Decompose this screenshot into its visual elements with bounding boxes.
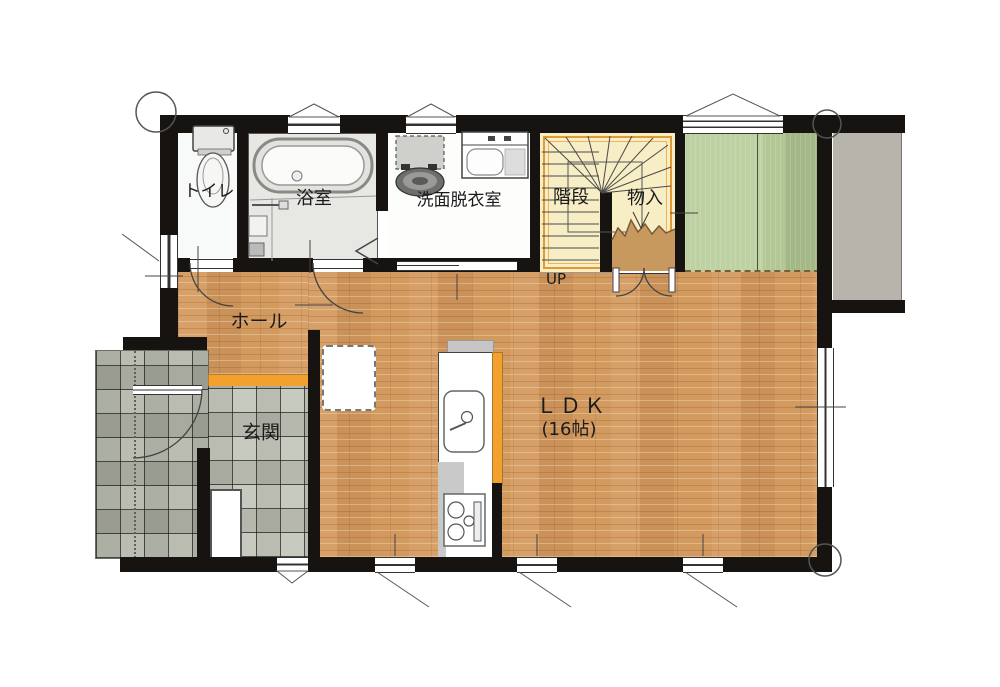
casement-window-line — [519, 572, 571, 607]
wall-bottom-c — [557, 557, 683, 572]
toilet-door-opening — [190, 259, 233, 269]
casement-window-line — [377, 572, 429, 607]
bottom-window-3 — [683, 557, 723, 573]
closet-door-opening — [614, 264, 674, 274]
wall-top-d — [782, 115, 905, 133]
casement-window-line — [685, 572, 737, 607]
entrance-label: 玄関 — [242, 418, 280, 445]
washroom-window — [406, 116, 456, 134]
toilet-label: トイレ — [184, 177, 235, 202]
wall-bottom-a1 — [120, 557, 277, 572]
bottom-window-2 — [517, 557, 557, 573]
wall-bottom-a2 — [308, 557, 375, 572]
wall-entrance-left — [197, 448, 210, 557]
kitchen-counter-edge-orange — [492, 352, 503, 485]
wall-bottom-d — [723, 557, 832, 572]
wall-stairs-right — [675, 133, 685, 272]
stairs-up-label: UP — [546, 270, 566, 288]
shoe-cabinet-icon — [210, 489, 242, 561]
wall-mid-b — [233, 258, 313, 272]
stairs-label: 階段 — [553, 183, 589, 209]
closet-label: 物入 — [627, 184, 663, 210]
wall-bottom-b — [415, 557, 517, 572]
tatami-area — [685, 133, 820, 272]
porch-drain-dotted-line — [134, 351, 136, 558]
terrace — [833, 133, 902, 301]
washroom-door-opening — [313, 259, 363, 269]
bay-window-triangle — [277, 571, 308, 583]
wall-top-a — [160, 115, 290, 133]
wall-right-bottom — [817, 487, 832, 557]
entrance-porch-tiles — [95, 350, 209, 559]
wall-stairs-center — [600, 192, 612, 272]
bottom-window-1 — [375, 557, 415, 573]
wall-entrance-right — [308, 330, 320, 557]
toilet-window — [160, 235, 178, 288]
wall-toilet-right — [237, 133, 248, 258]
front-door-line — [133, 385, 202, 395]
wall-top-b — [340, 115, 408, 133]
hall-label: ホール — [230, 307, 287, 334]
kitchen-gray-strip — [438, 494, 446, 558]
ldk-size-label: (16帖) — [542, 415, 597, 441]
casement-window-line — [122, 234, 159, 261]
wall-right-top — [817, 133, 832, 348]
tatami-divider-line — [757, 133, 758, 270]
ldk-right-window — [817, 348, 834, 487]
wall-left-a — [160, 115, 178, 235]
wall-porch-top — [123, 337, 207, 350]
floor-plan: トイレ 浴室 洗面脱衣室 階段 物入 UP ホール 玄関 ＬＤＫ (16帖) — [0, 0, 1000, 687]
wall-kitchen-stub — [492, 483, 502, 558]
washroom-label: 洗面脱衣室 — [417, 186, 502, 211]
kitchen-counter — [438, 352, 494, 560]
wall-stairs-left — [530, 133, 540, 272]
wall-top-c — [456, 115, 684, 133]
kitchen-gray-block — [438, 462, 464, 494]
bath-label: 浴室 — [296, 184, 332, 210]
washroom-sliding-door — [397, 261, 517, 271]
wall-bath-right — [376, 133, 388, 211]
tatami-window — [683, 115, 783, 134]
counter-furniture-icon — [322, 345, 376, 411]
entrance-bay-window — [277, 557, 308, 572]
bath-window — [288, 116, 340, 134]
wall-terrace-bottom — [832, 300, 905, 313]
awning-window-triangle — [686, 94, 780, 116]
